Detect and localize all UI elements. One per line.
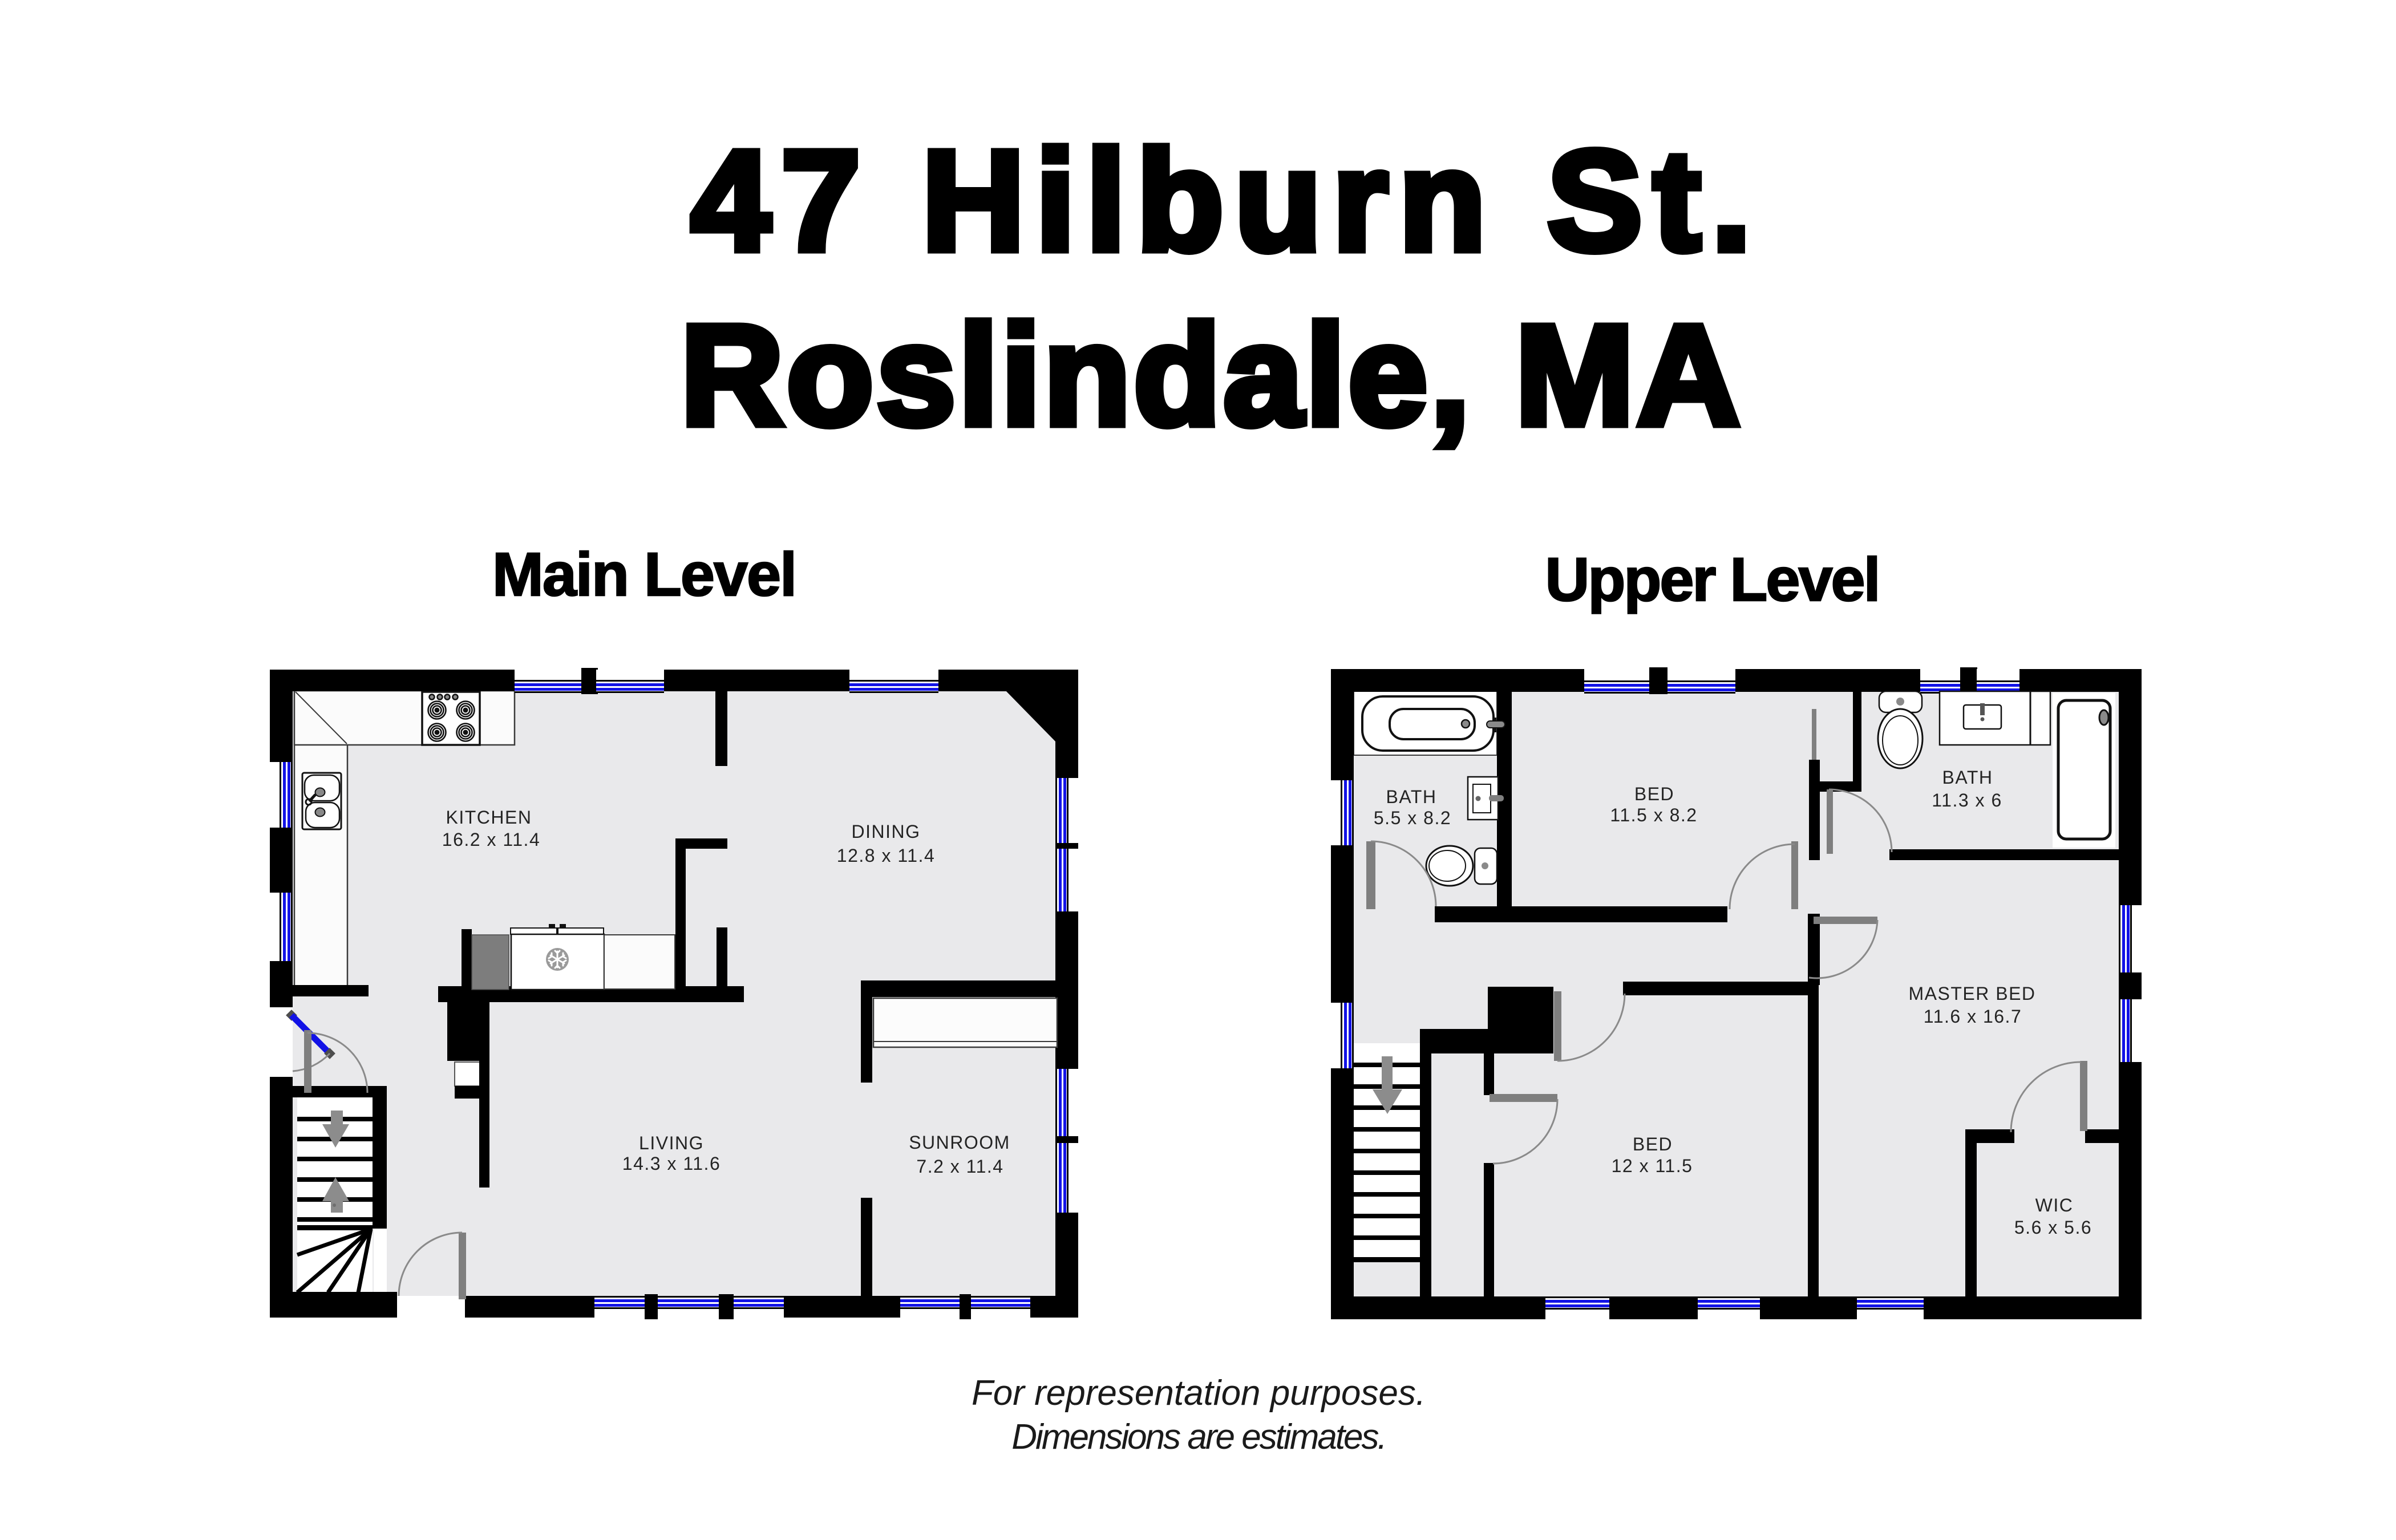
svg-text:47 Hilburn St.: 47 Hilburn St. (691, 121, 1762, 280)
svg-text:5.6 x 5.6: 5.6 x 5.6 (2014, 1217, 2092, 1238)
svg-text:Main Level: Main Level (492, 540, 796, 609)
svg-text:12.8 x 11.4: 12.8 x 11.4 (837, 845, 935, 866)
svg-text:BED: BED (1634, 784, 1674, 804)
svg-text:12 x 11.5: 12 x 11.5 (1612, 1156, 1693, 1176)
svg-text:MASTER BED: MASTER BED (1908, 983, 2035, 1004)
svg-text:SUNROOM: SUNROOM (909, 1132, 1010, 1153)
svg-text:DINING: DINING (852, 821, 921, 842)
svg-text:14.3 x 11.6: 14.3 x 11.6 (622, 1153, 721, 1174)
svg-text:11.3 x 6: 11.3 x 6 (1932, 790, 2002, 810)
svg-text:11.6 x 16.7: 11.6 x 16.7 (1924, 1006, 2022, 1027)
svg-text:LIVING: LIVING (639, 1133, 704, 1153)
svg-text:11.5 x 8.2: 11.5 x 8.2 (1610, 805, 1697, 825)
svg-text:BED: BED (1633, 1134, 1673, 1154)
svg-text:Roslindale, MA: Roslindale, MA (681, 295, 1743, 455)
svg-text:16.2 x 11.4: 16.2 x 11.4 (442, 829, 540, 850)
svg-text:Dimensions are estimates.: Dimensions are estimates. (1011, 1417, 1386, 1457)
svg-text:Upper Level: Upper Level (1545, 545, 1879, 614)
svg-text:5.5 x 8.2: 5.5 x 8.2 (1374, 808, 1451, 828)
svg-text:BATH: BATH (1386, 787, 1437, 807)
svg-text:7.2 x 11.4: 7.2 x 11.4 (916, 1156, 1003, 1177)
svg-text:BATH: BATH (1942, 767, 1993, 788)
svg-text:WIC: WIC (2035, 1195, 2074, 1215)
svg-text:For representation purposes.: For representation purposes. (972, 1373, 1426, 1413)
svg-text:KITCHEN: KITCHEN (446, 807, 532, 828)
